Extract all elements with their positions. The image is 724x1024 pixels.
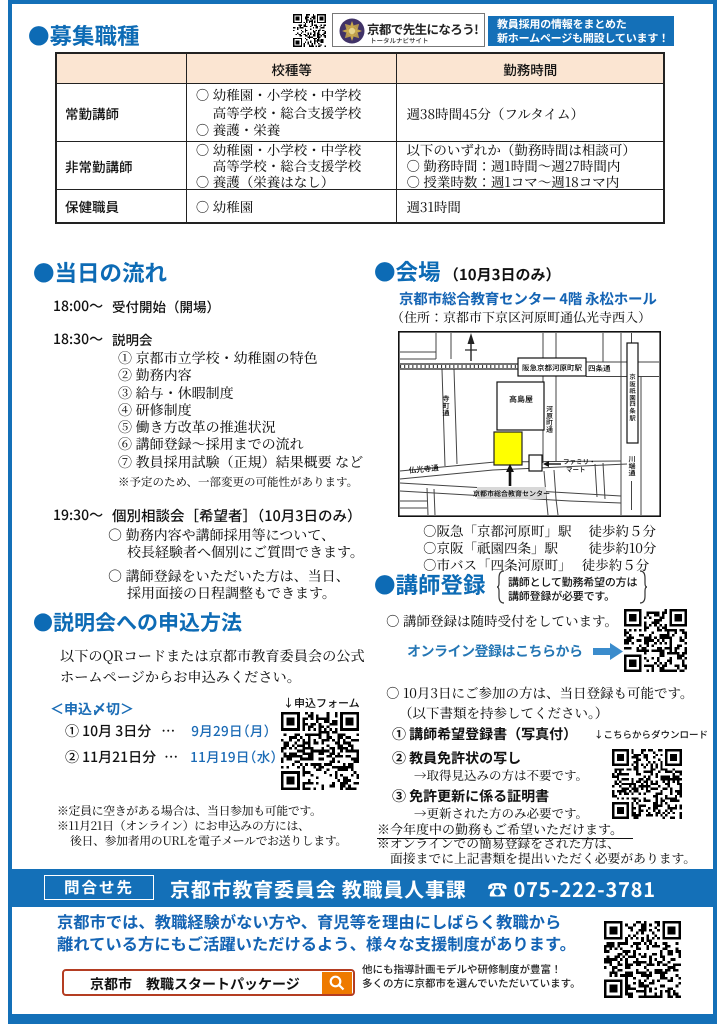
svg-text:高島屋: 高島屋 bbox=[509, 394, 533, 405]
svg-text:川端通: 川端通 bbox=[627, 455, 637, 476]
svg-text:四条通: 四条通 bbox=[588, 363, 611, 374]
svg-text:阪急京都河原町駅: 阪急京都河原町駅 bbox=[522, 363, 582, 374]
svg-text:京都市総合教育センター: 京都市総合教育センター bbox=[473, 489, 550, 499]
svg-text:寺町通: 寺町通 bbox=[441, 395, 451, 416]
svg-text:京阪祇園四条駅: 京阪祇園四条駅 bbox=[628, 373, 637, 421]
svg-text:マート: マート bbox=[566, 464, 586, 474]
svg-text:河原町通: 河原町通 bbox=[545, 405, 555, 433]
